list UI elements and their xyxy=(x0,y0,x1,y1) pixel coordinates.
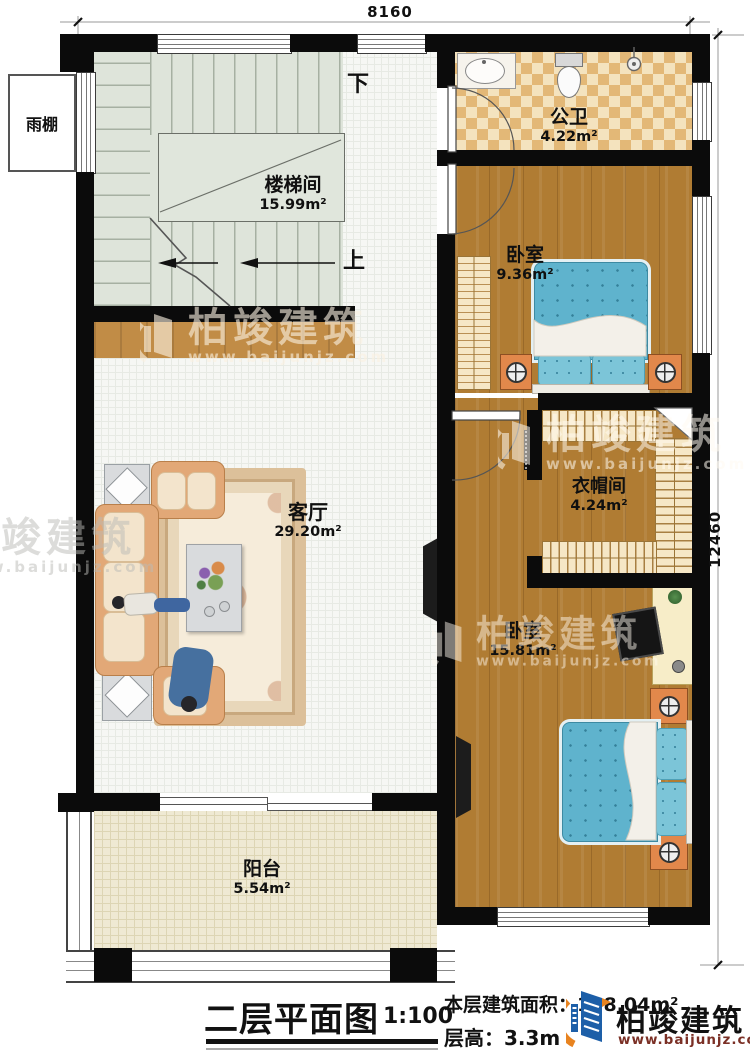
bathroom-label: 公卫 4.22m² xyxy=(519,106,619,146)
floor-plan: 雨棚 楼梯间 15.99m² xyxy=(0,0,750,1058)
room-area: 5.54m² xyxy=(212,881,312,898)
wall-left xyxy=(76,172,94,812)
room-name: 卧室 xyxy=(468,620,578,643)
tv-icon xyxy=(423,538,438,622)
window-canopy xyxy=(76,72,96,174)
living-room-label: 客厅 29.20m² xyxy=(258,500,358,541)
hanger-rack-top xyxy=(542,410,657,442)
wall-right xyxy=(692,353,710,925)
side-table xyxy=(102,670,152,721)
dimension-right-label: 12460 xyxy=(706,478,724,568)
hanger-rack-right xyxy=(655,438,694,575)
nightstand xyxy=(650,688,688,724)
railing-pier xyxy=(390,948,437,982)
brand-url: www.baijunjz.com xyxy=(618,1032,750,1048)
room-name: 客厅 xyxy=(258,500,358,524)
lamp-icon xyxy=(659,842,680,863)
person-lying-legs xyxy=(154,598,190,612)
wall-bathroom-divider xyxy=(437,150,710,166)
pillow xyxy=(656,728,688,780)
cup-icon xyxy=(219,601,230,612)
page-title: 二层平面图 xyxy=(204,992,379,1041)
wall-right xyxy=(692,34,710,82)
window-right xyxy=(692,82,712,142)
wall-right xyxy=(692,140,710,196)
wall-top xyxy=(94,34,157,52)
wall-interior-vertical xyxy=(437,234,455,398)
room-area: 29.20m² xyxy=(258,524,358,541)
tv-icon xyxy=(456,736,471,818)
wood-threshold-band xyxy=(94,322,355,358)
nightstand xyxy=(500,354,532,390)
stair-flight-left xyxy=(94,52,150,306)
balcony-label: 阳台 5.54m² xyxy=(212,858,312,898)
bedroom-top-label: 卧室 9.36m² xyxy=(475,244,575,284)
wall-balcony xyxy=(372,793,455,811)
lamp-icon xyxy=(506,362,527,383)
brand-logo-icon xyxy=(566,986,612,1048)
pillow xyxy=(592,354,645,386)
dimension-top-label: 8160 xyxy=(330,3,450,21)
canopy-label: 雨棚 xyxy=(26,111,58,135)
toilet-tank xyxy=(555,53,583,67)
title-underline xyxy=(206,1039,438,1044)
window-top xyxy=(357,34,427,54)
room-name: 楼梯间 xyxy=(233,174,353,197)
nightstand xyxy=(648,354,682,390)
stair-flight-top xyxy=(150,52,343,135)
sink-faucet-icon xyxy=(482,60,486,64)
sofa-cushion xyxy=(103,512,145,562)
drawing-scale: 1:100 xyxy=(383,1004,453,1029)
window-top xyxy=(157,34,292,54)
wall-interior-vertical xyxy=(437,52,455,88)
flower-decor xyxy=(192,558,234,594)
room-name: 公卫 xyxy=(519,106,619,129)
room-area: 15.81m² xyxy=(468,643,578,660)
sliding-door xyxy=(267,803,375,811)
plant-icon xyxy=(668,590,682,604)
wall-cloakroom-bottom xyxy=(527,573,692,588)
wall-top xyxy=(425,34,692,52)
wall-bedroom-divider xyxy=(538,393,692,410)
wall-bottom xyxy=(648,907,710,925)
lamp-icon xyxy=(655,362,676,383)
sofa-cushion xyxy=(187,472,216,510)
wall-interior-vertical xyxy=(437,398,455,907)
railing-pier xyxy=(94,948,132,982)
sofa-cushion xyxy=(157,472,186,510)
wall-bottom xyxy=(437,907,497,925)
tv-icon xyxy=(612,607,664,662)
title-underline-thin xyxy=(206,1048,438,1050)
person-sitting-head xyxy=(181,696,197,712)
floor-height-text: 层高：3.3m xyxy=(444,1022,560,1051)
window-right xyxy=(692,196,712,355)
sliding-door xyxy=(159,797,268,805)
desk-lamp-icon xyxy=(672,660,685,673)
table-inlay xyxy=(104,673,149,718)
pillow xyxy=(656,782,688,836)
room-area: 4.22m² xyxy=(519,129,619,146)
lamp-icon xyxy=(659,696,680,717)
room-name: 衣帽间 xyxy=(549,476,649,498)
sofa-cushion xyxy=(103,612,145,662)
room-area: 9.36m² xyxy=(475,267,575,284)
stair-down-label: 下 xyxy=(347,66,369,98)
room-area: 4.24m² xyxy=(549,498,649,515)
wall-stair-divider xyxy=(94,306,355,322)
pillow xyxy=(538,354,591,386)
cup-icon xyxy=(204,606,215,617)
room-name: 阳台 xyxy=(212,858,312,881)
bedroom-main-label: 卧室 15.81m² xyxy=(468,620,578,660)
wall-corner-topleft xyxy=(60,34,94,72)
room-name: 卧室 xyxy=(475,244,575,267)
wall-top xyxy=(290,34,357,52)
wall-balcony xyxy=(76,793,160,811)
wall-cloakroom-left xyxy=(527,410,542,480)
window-bottom xyxy=(497,907,650,927)
room-area: 15.99m² xyxy=(233,197,353,214)
wall-bedroom-divider xyxy=(437,393,455,410)
stair-flight-bottom xyxy=(150,218,343,306)
hanger-rack-bottom xyxy=(542,541,657,575)
bed-main xyxy=(562,722,658,842)
stair-up-label: 上 xyxy=(343,243,365,275)
stairwell-label: 楼梯间 15.99m² xyxy=(233,174,353,214)
cloakroom-label: 衣帽间 4.24m² xyxy=(549,476,649,515)
rain-canopy: 雨棚 xyxy=(8,74,76,172)
